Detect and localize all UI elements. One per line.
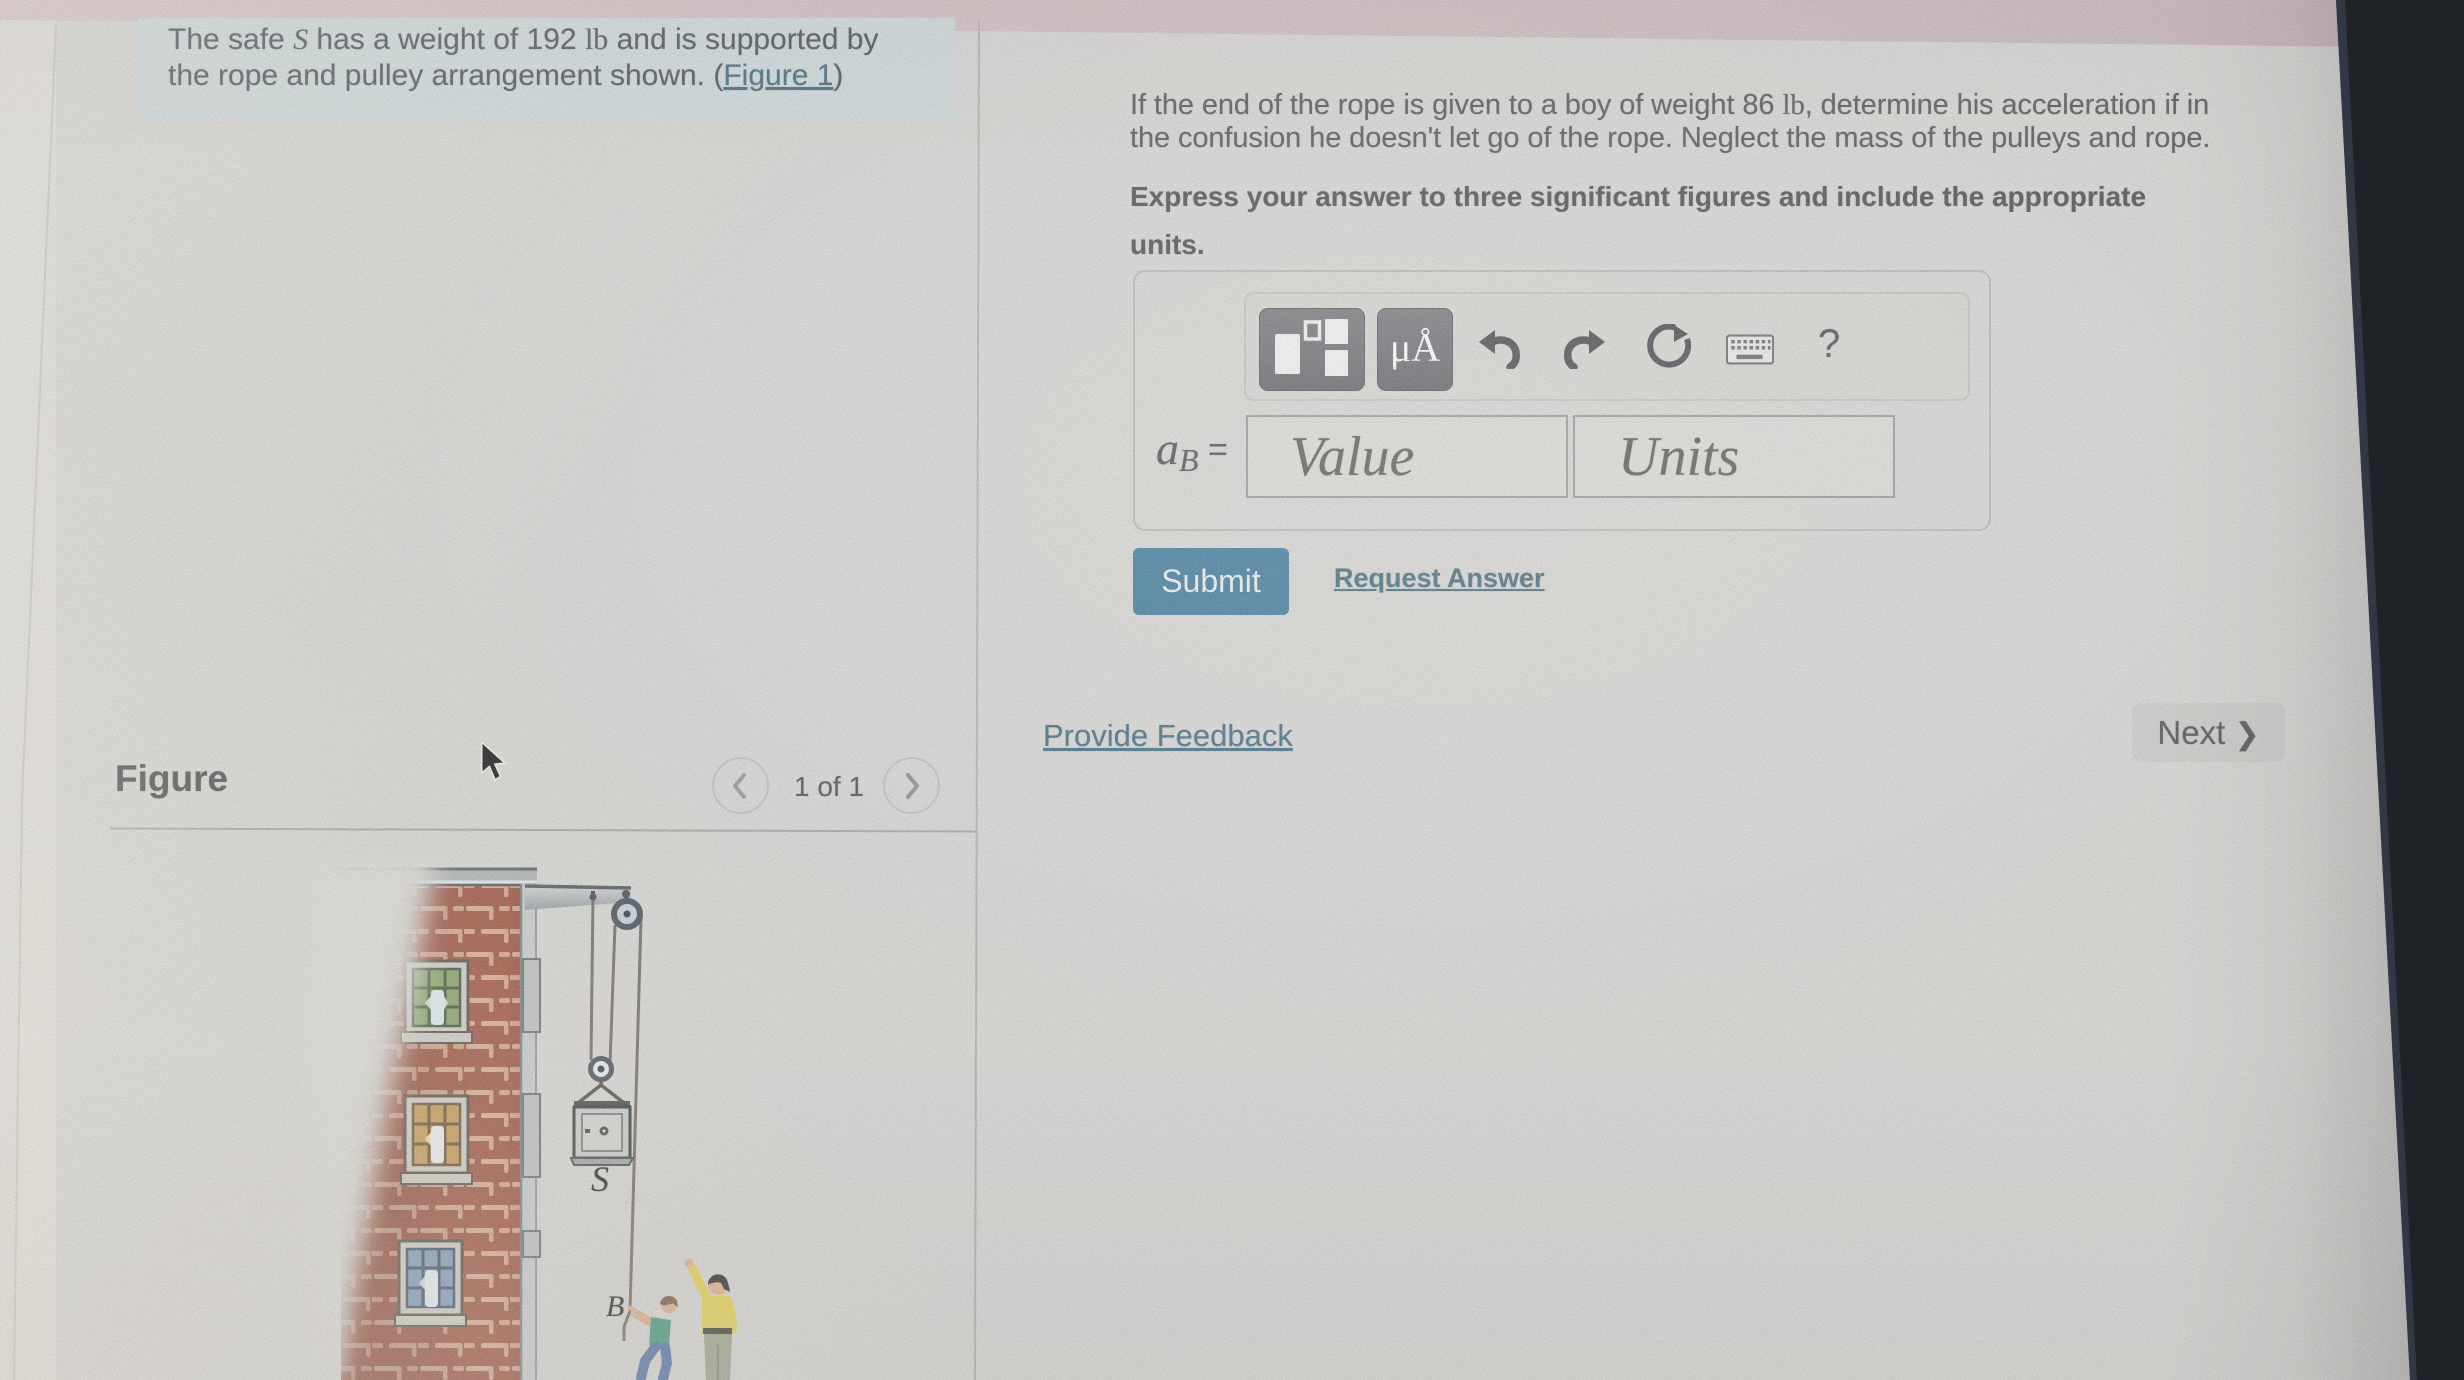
svg-text:B: B (606, 1290, 624, 1323)
svg-text:S: S (591, 1159, 609, 1199)
